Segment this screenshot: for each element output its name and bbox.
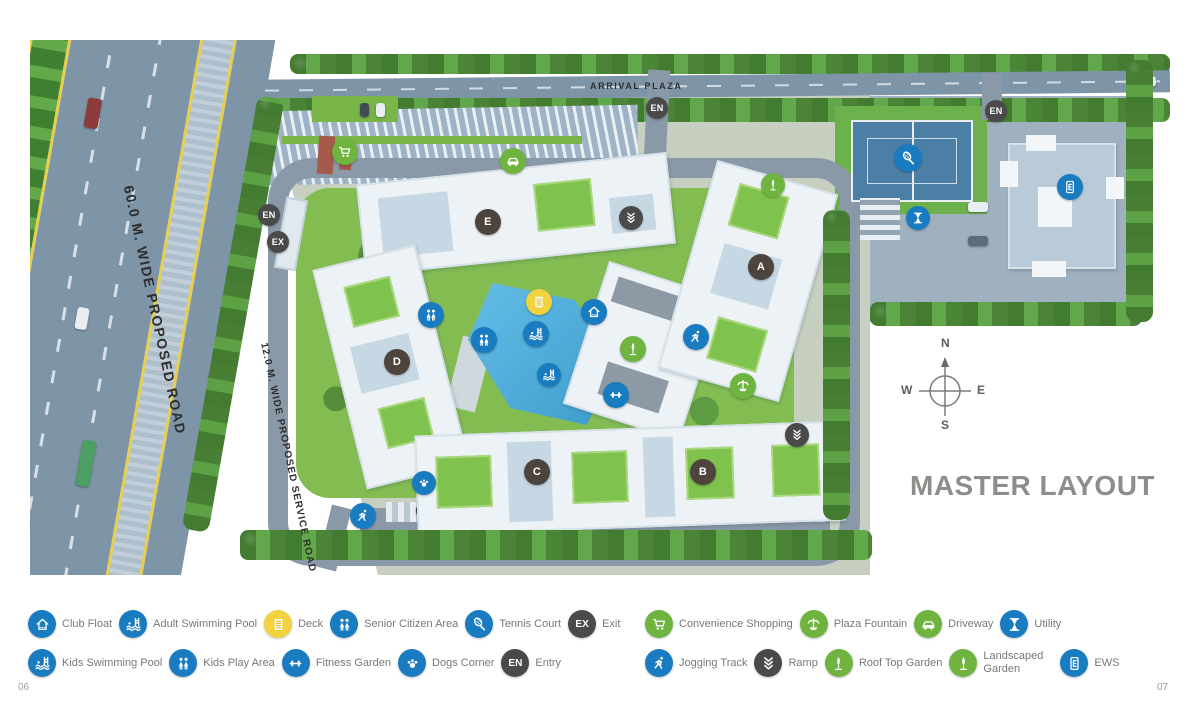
pool-icon (541, 367, 557, 383)
legend-row: Jogging TrackRampRoof Top GardenLandscap… (645, 649, 1119, 677)
jogging-track-marker-1 (683, 324, 709, 350)
people-icon (330, 610, 358, 638)
legend-label: Kids Play Area (203, 657, 275, 669)
legend-item-senior-citizen-area: Senior Citizen Area (330, 610, 458, 638)
deck-icon (264, 610, 292, 638)
fountain-icon (800, 610, 828, 638)
legend-right-group: Convenience ShoppingPlaza FountainDrivew… (645, 610, 1119, 688)
legend-label: Jogging Track (679, 657, 747, 669)
legend-item-convenience-shopping: Convenience Shopping (645, 610, 793, 638)
chevrons-icon (623, 210, 639, 226)
paw-icon (403, 654, 422, 673)
legend-label: Club Float (62, 618, 112, 630)
ramp-marker-top (619, 206, 643, 230)
people-icon (422, 306, 440, 324)
dogs-corner-marker (412, 471, 436, 495)
tower-d-badge: D (384, 349, 410, 375)
legend-label: Roof Top Garden (859, 657, 943, 669)
marker-label: EN (989, 106, 1002, 116)
house-icon (585, 303, 603, 321)
legend-label: Tennis Court (499, 618, 561, 630)
ramp-marker-right (785, 423, 809, 447)
fountain-icon (804, 615, 823, 634)
legend: Club FloatAdult Swimming PoolDeckSenior … (28, 610, 1172, 700)
legend-item-deck: Deck (264, 610, 323, 638)
legend-item-ews: EWS (1060, 649, 1119, 677)
house-icon (33, 615, 52, 634)
exit-icon: EX (568, 610, 596, 638)
plaza-fountain-marker (730, 373, 756, 399)
racket-icon (470, 615, 489, 634)
dumbbell-icon (607, 386, 625, 404)
master-layout-map: 60.0 M. WIDE PROPOSED ROAD 12.0 M. WIDE … (30, 40, 1170, 575)
runner-icon (687, 328, 705, 346)
legend-item-plaza-fountain: Plaza Fountain (800, 610, 907, 638)
deck-marker (526, 289, 552, 315)
legend-item-kids-swimming-pool: Kids Swimming Pool (28, 649, 162, 677)
legend-item-tennis-court: Tennis Court (465, 610, 561, 638)
cart-icon (336, 143, 354, 161)
car-icon (919, 615, 938, 634)
people-icon (335, 615, 354, 634)
tree-icon (829, 654, 848, 673)
legend-label: Dogs Corner (432, 657, 494, 669)
runner-icon (645, 649, 673, 677)
legend-label: Landscaped Garden (983, 650, 1053, 675)
marker-label: B (699, 466, 707, 478)
roof-top-garden-marker (620, 336, 646, 362)
hourglass-icon (910, 210, 926, 226)
legend-item-entry: ENEntry (501, 649, 561, 677)
utility-marker (906, 206, 930, 230)
building-icon (1061, 178, 1079, 196)
legend-item-driveway: Driveway (914, 610, 993, 638)
marker-label: E (484, 216, 492, 228)
tree-icon (954, 654, 973, 673)
map-markers: ENENENEXEADCB (30, 40, 1170, 575)
driveway-marker (500, 148, 526, 174)
dumbbell-icon (286, 654, 305, 673)
marker-label: A (757, 261, 765, 273)
hourglass-icon (1000, 610, 1028, 638)
marker-label: EX (272, 237, 285, 247)
fountain-icon (734, 377, 752, 395)
legend-item-fitness-garden: Fitness Garden (282, 649, 391, 677)
chevrons-icon (759, 654, 778, 673)
pool-icon (527, 325, 545, 343)
legend-item-ramp: Ramp (754, 649, 817, 677)
tree-icon (949, 649, 977, 677)
deck-icon (269, 615, 288, 634)
legend-item-exit: EXExit (568, 610, 620, 638)
page-number-right: 07 (1157, 682, 1168, 693)
car-icon (914, 610, 942, 638)
club-float-marker (581, 299, 607, 325)
kids-swimming-pool-marker (537, 363, 561, 387)
racket-icon (465, 610, 493, 638)
marker-label: D (393, 356, 401, 368)
legend-row: Club FloatAdult Swimming PoolDeckSenior … (28, 610, 620, 638)
legend-label: Fitness Garden (316, 657, 391, 669)
brochure-page: 60.0 M. WIDE PROPOSED ROAD 12.0 M. WIDE … (0, 0, 1200, 720)
tree-icon (765, 177, 781, 193)
legend-item-adult-swimming-pool: Adult Swimming Pool (119, 610, 257, 638)
cart-icon (645, 610, 673, 638)
legend-item-kids-play-area: Kids Play Area (169, 649, 275, 677)
runner-icon (354, 507, 372, 525)
people-icon (475, 331, 493, 349)
legend-item-club-float: Club Float (28, 610, 112, 638)
marker-label: C (533, 466, 541, 478)
legend-label: Adult Swimming Pool (153, 618, 257, 630)
car-icon (504, 152, 522, 170)
chevrons-icon (789, 427, 805, 443)
deck-icon (530, 293, 548, 311)
legend-item-landscaped-garden: Landscaped Garden (949, 649, 1053, 677)
entry-marker-right: EN (985, 100, 1007, 122)
legend-label: Utility (1034, 618, 1061, 630)
pool-icon (28, 649, 56, 677)
legend-label: Kids Swimming Pool (62, 657, 162, 669)
pool-icon (124, 615, 143, 634)
legend-item-utility: Utility (1000, 610, 1061, 638)
legend-label: Exit (602, 618, 620, 630)
kids-play-area-marker (471, 327, 497, 353)
legend-label: Ramp (788, 657, 817, 669)
legend-item-dogs-corner: Dogs Corner (398, 649, 494, 677)
tower-e-badge: E (475, 209, 501, 235)
tree-icon (825, 649, 853, 677)
tree-icon (624, 340, 642, 358)
legend-item-roof-top-garden: Roof Top Garden (825, 649, 943, 677)
legend-label: Driveway (948, 618, 993, 630)
legend-item-jogging-track: Jogging Track (645, 649, 747, 677)
page-number-left: 06 (18, 682, 29, 693)
cart-icon (650, 615, 669, 634)
racket-icon (899, 149, 918, 168)
arrival-plaza-label: ARRIVAL PLAZA (590, 81, 682, 91)
runner-icon (650, 654, 669, 673)
entry-marker-top: EN (646, 97, 668, 119)
adult-swimming-pool-marker (523, 321, 549, 347)
tower-c-badge: C (524, 459, 550, 485)
entry-marker-left: EN (258, 204, 280, 226)
chevrons-icon (754, 649, 782, 677)
jogging-track-marker-2 (350, 503, 376, 529)
senior-citizen-area-marker (418, 302, 444, 328)
tower-b-badge: B (690, 459, 716, 485)
legend-left-group: Club FloatAdult Swimming PoolDeckSenior … (28, 610, 620, 688)
marker-label: EN (650, 103, 663, 113)
people-icon (174, 654, 193, 673)
pool-icon (119, 610, 147, 638)
dumbbell-icon (282, 649, 310, 677)
legend-label: Deck (298, 618, 323, 630)
building-icon (1065, 654, 1084, 673)
ews-marker (1057, 174, 1083, 200)
entry-icon: EN (501, 649, 529, 677)
hourglass-icon (1005, 615, 1024, 634)
tennis-court-marker (894, 144, 922, 172)
house-icon (28, 610, 56, 638)
legend-row: Kids Swimming PoolKids Play AreaFitness … (28, 649, 620, 677)
fitness-garden-marker (603, 382, 629, 408)
tower-a-badge: A (748, 254, 774, 280)
legend-label: Senior Citizen Area (364, 618, 458, 630)
building-icon (1060, 649, 1088, 677)
legend-label: Entry (535, 657, 561, 669)
exit-marker-left: EX (267, 231, 289, 253)
legend-label: Convenience Shopping (679, 618, 793, 630)
legend-label: EWS (1094, 657, 1119, 669)
marker-label: EN (262, 210, 275, 220)
pool-icon (33, 654, 52, 673)
legend-row: Convenience ShoppingPlaza FountainDrivew… (645, 610, 1119, 638)
landscaped-garden-marker (761, 173, 785, 197)
paw-icon (416, 475, 432, 491)
people-icon (169, 649, 197, 677)
convenience-shopping-marker (332, 139, 358, 165)
legend-label: Plaza Fountain (834, 618, 907, 630)
paw-icon (398, 649, 426, 677)
